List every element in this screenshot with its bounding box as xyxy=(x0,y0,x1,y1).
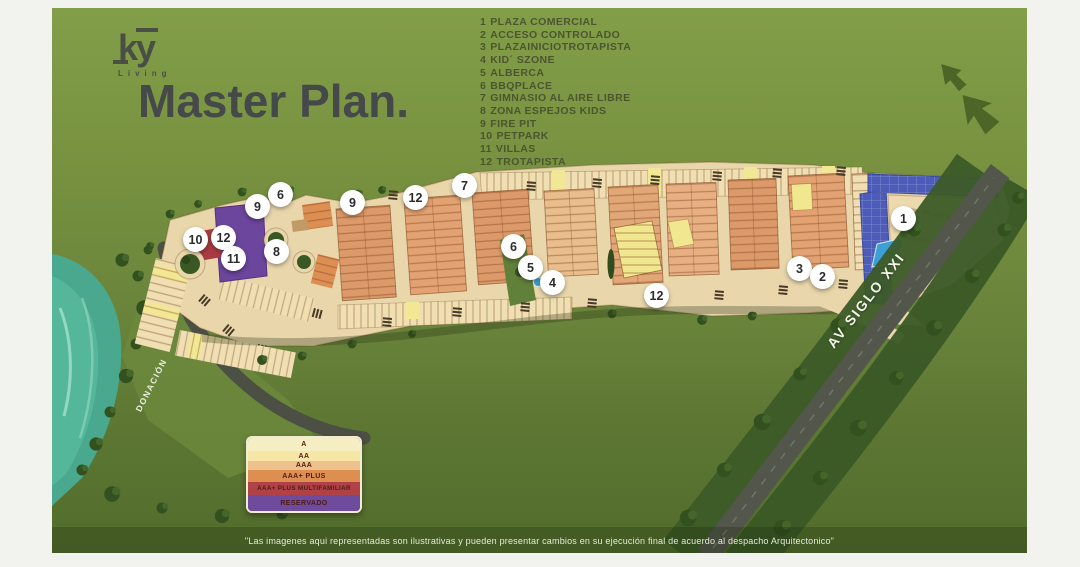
map-marker: 10 xyxy=(183,227,208,252)
amenity-item: 6BBQPLACE xyxy=(480,80,631,93)
legend-row: AA xyxy=(248,451,360,461)
page-title: Master Plan. xyxy=(138,74,409,128)
map-marker: 4 xyxy=(540,270,565,295)
logo-mark: ky xyxy=(118,30,154,66)
map-marker: 1 xyxy=(891,206,916,231)
legend-row: AAA+ PLUS MULTIFAMILIAR xyxy=(248,482,360,495)
amenity-item: 1PLAZA COMERCIAL xyxy=(480,16,631,29)
amenity-item: 10PETPARK xyxy=(480,130,631,143)
legend-row: A xyxy=(248,438,360,451)
logo-underbar xyxy=(113,60,128,64)
map-marker: 6 xyxy=(268,182,293,207)
map-marker: 2 xyxy=(810,264,835,289)
lot-type-legend: A AA AAA AAA+ PLUS AAA+ PLUS MULTIFAMILI… xyxy=(246,436,362,513)
amenity-item: 12TROTAPISTA xyxy=(480,156,631,169)
amenity-item: 3PLAZAINICIOTROTAPISTA xyxy=(480,41,631,54)
disclaimer-text: "Las imagenes aqui representadas son ilu… xyxy=(52,536,1027,546)
legend-row: AAA+ PLUS xyxy=(248,470,360,482)
amenities-legend: 1PLAZA COMERCIAL 2ACCESO CONTROLADO 3PLA… xyxy=(480,16,631,168)
map-marker: 7 xyxy=(452,173,477,198)
master-plan-flyer: ky Living Master Plan. 1PLAZA COMERCIAL … xyxy=(0,0,1080,567)
amenity-item: 11VILLAS xyxy=(480,143,631,156)
amenity-item: 8ZONA ESPEJOS KIDS xyxy=(480,105,631,118)
map-marker: 5 xyxy=(518,255,543,280)
map-marker: 8 xyxy=(264,239,289,264)
map-marker: 12 xyxy=(644,283,669,308)
amenity-item: 9FIRE PIT xyxy=(480,118,631,131)
map-marker: 9 xyxy=(340,190,365,215)
amenity-item: 5ALBERCA xyxy=(480,67,631,80)
compass-arrows-icon xyxy=(924,50,1019,145)
logo-overbar xyxy=(136,28,158,32)
legend-row: AAA xyxy=(248,461,360,470)
map-marker: 9 xyxy=(245,194,270,219)
amenity-item: 4KID´ SZONE xyxy=(480,54,631,67)
amenity-item: 2ACCESO CONTROLADO xyxy=(480,29,631,42)
brand-logo: ky Living xyxy=(118,30,172,78)
map-marker: 6 xyxy=(501,234,526,259)
map-marker: 3 xyxy=(787,256,812,281)
legend-row: RESERVADO xyxy=(248,495,360,511)
map-marker: 12 xyxy=(403,185,428,210)
map-stage: ky Living Master Plan. 1PLAZA COMERCIAL … xyxy=(52,8,1027,553)
amenity-item: 7GIMNASIO AL AIRE LIBRE xyxy=(480,92,631,105)
map-marker: 11 xyxy=(221,246,246,271)
